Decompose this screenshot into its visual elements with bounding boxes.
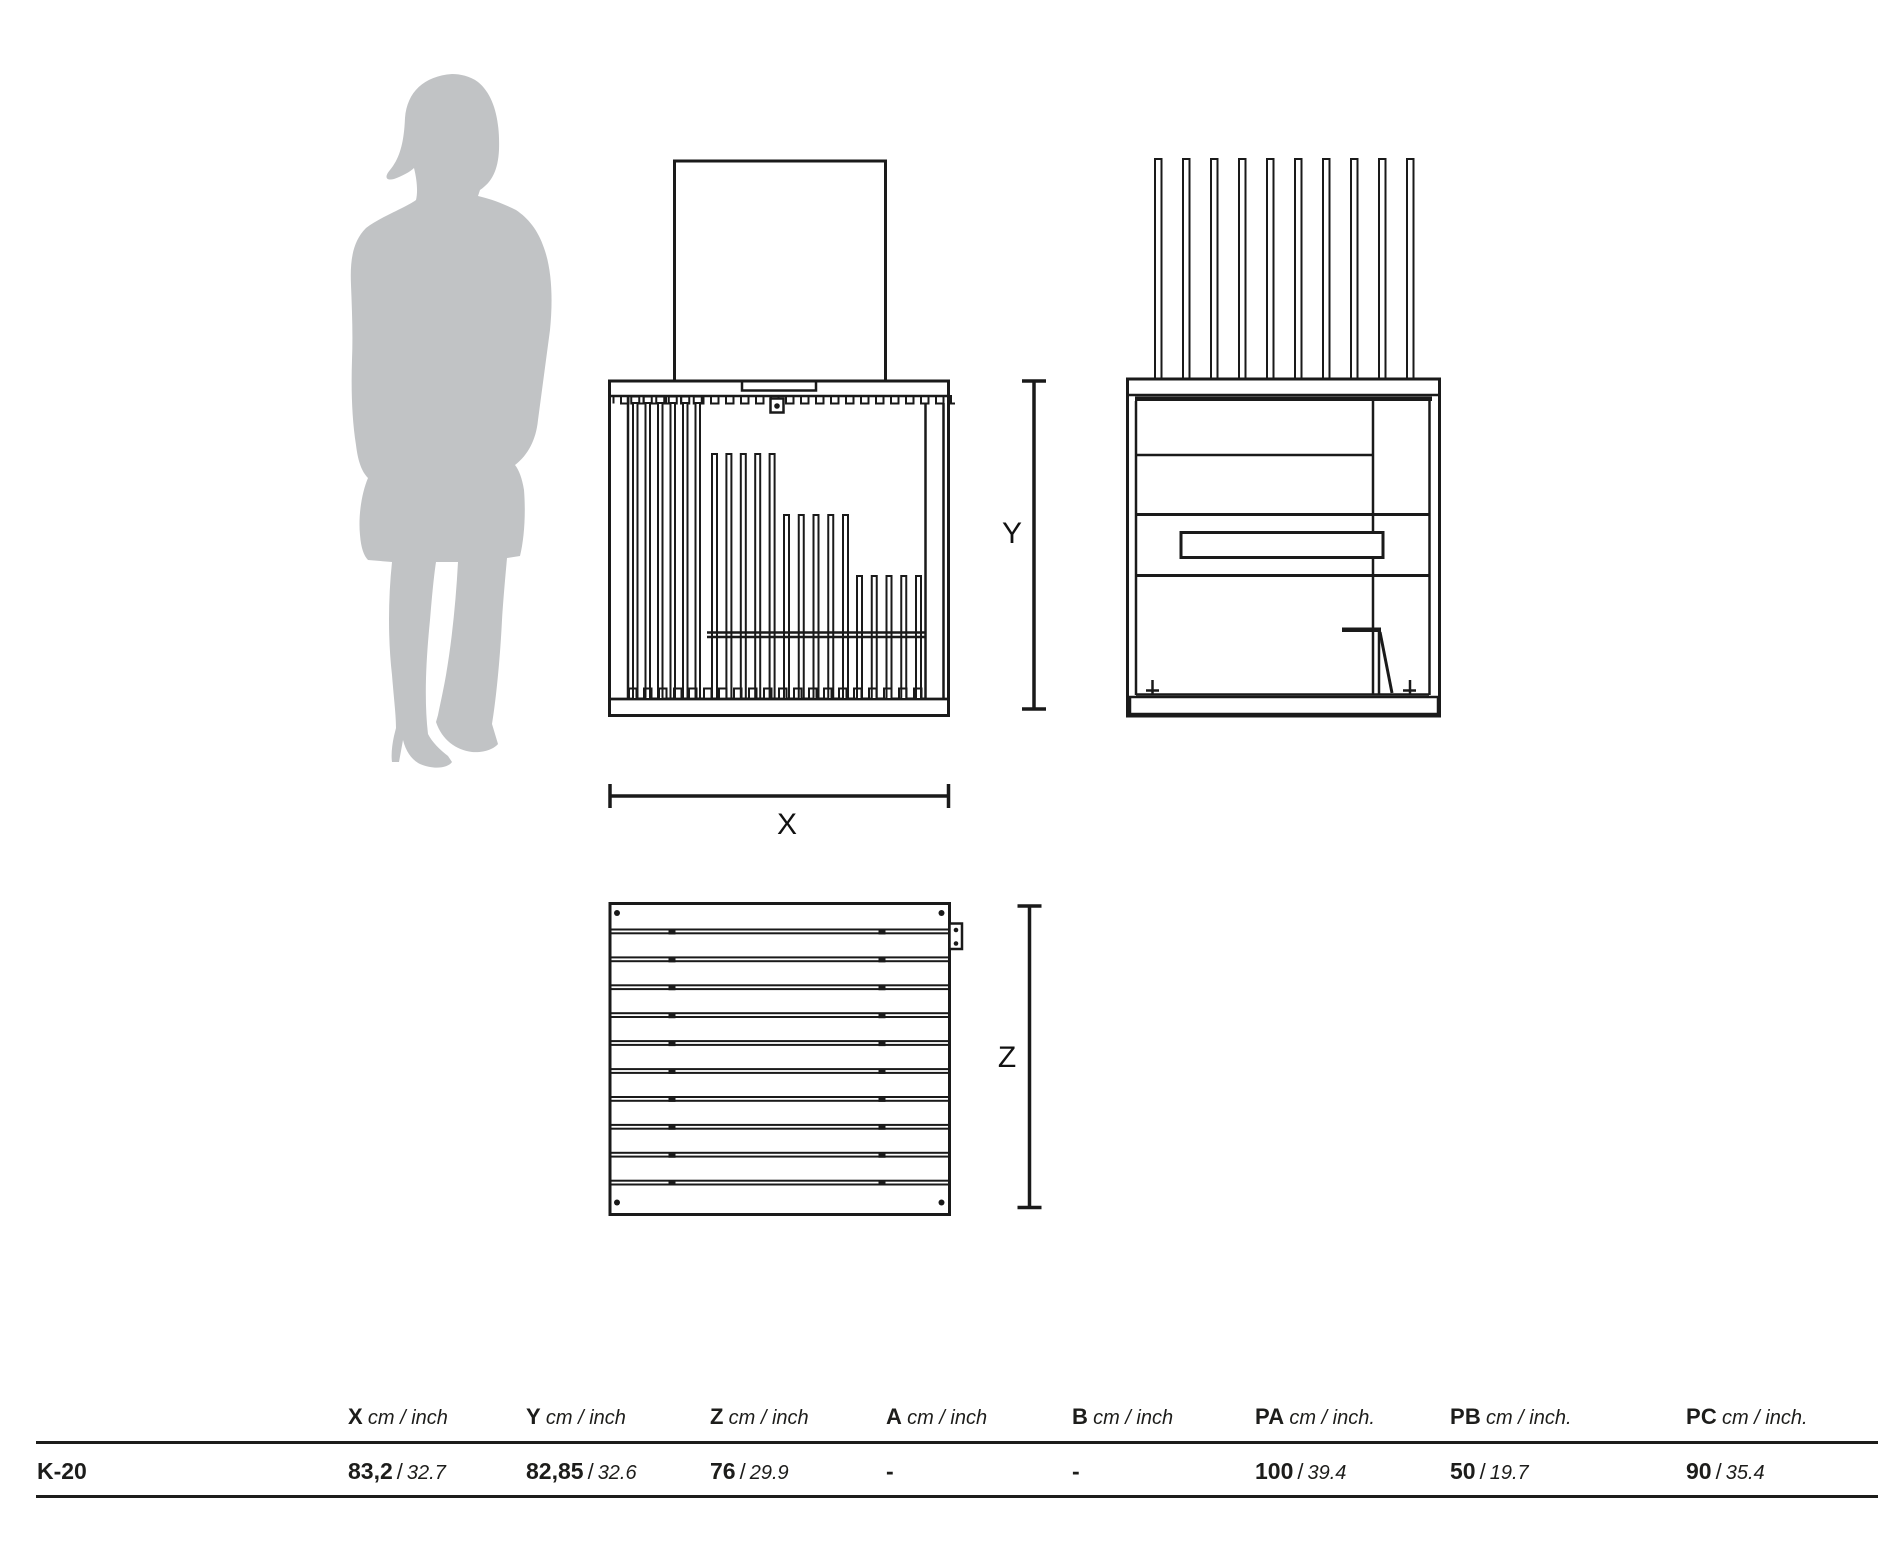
table-header-b: Bcm / inch [1072,1404,1173,1430]
front-view-drawing: X Y [595,150,1065,850]
table-cell-a: - [886,1458,902,1485]
dimension-line-z [1018,906,1042,1208]
dimension-label-z: Z [998,1041,1016,1074]
table-cell-y: 82,85/32.6 [526,1458,637,1485]
table-rule-bottom [36,1495,1878,1498]
dimension-line-x [610,784,949,808]
dimension-label-x: X [777,808,797,841]
table-cell-x: 83,2/32.7 [348,1458,446,1485]
table-header-pa: PAcm / inch. [1255,1404,1375,1430]
table-cell-pa: 100/39.4 [1255,1458,1346,1485]
sample-panel [675,161,886,381]
top-view-drawing: Z [595,888,1065,1228]
sample-rods [1155,159,1414,393]
table-cell-pc: 90/35.4 [1686,1458,1765,1485]
table-rule-top [36,1441,1878,1444]
technical-drawing-sheet: X Y [0,0,1900,1559]
person-silhouette [340,66,560,776]
table-cell-pb: 50/19.7 [1450,1458,1529,1485]
woman-silhouette-shape [351,74,552,768]
table-header-pc: PCcm / inch. [1686,1404,1808,1430]
table-cell-z: 76/29.9 [710,1458,789,1485]
hook-fitting [771,399,784,413]
table-header-pb: PBcm / inch. [1450,1404,1572,1430]
handle-slot [1181,533,1383,558]
table-header-x: Xcm / inch [348,1404,448,1430]
side-frame [1128,379,1440,716]
table-row-name: K-20 [37,1458,87,1485]
side-view-drawing [1115,150,1455,730]
table-header-a: Acm / inch [886,1404,987,1430]
top-view-outline [610,904,950,1215]
wall-bracket-tab [950,924,963,950]
table-header-z: Zcm / inch [710,1404,809,1430]
table-cell-b: - [1072,1458,1088,1485]
table-header-y: Ycm / inch [526,1404,626,1430]
dimension-label-y: Y [1002,517,1022,550]
dimension-line-y [1022,381,1046,709]
